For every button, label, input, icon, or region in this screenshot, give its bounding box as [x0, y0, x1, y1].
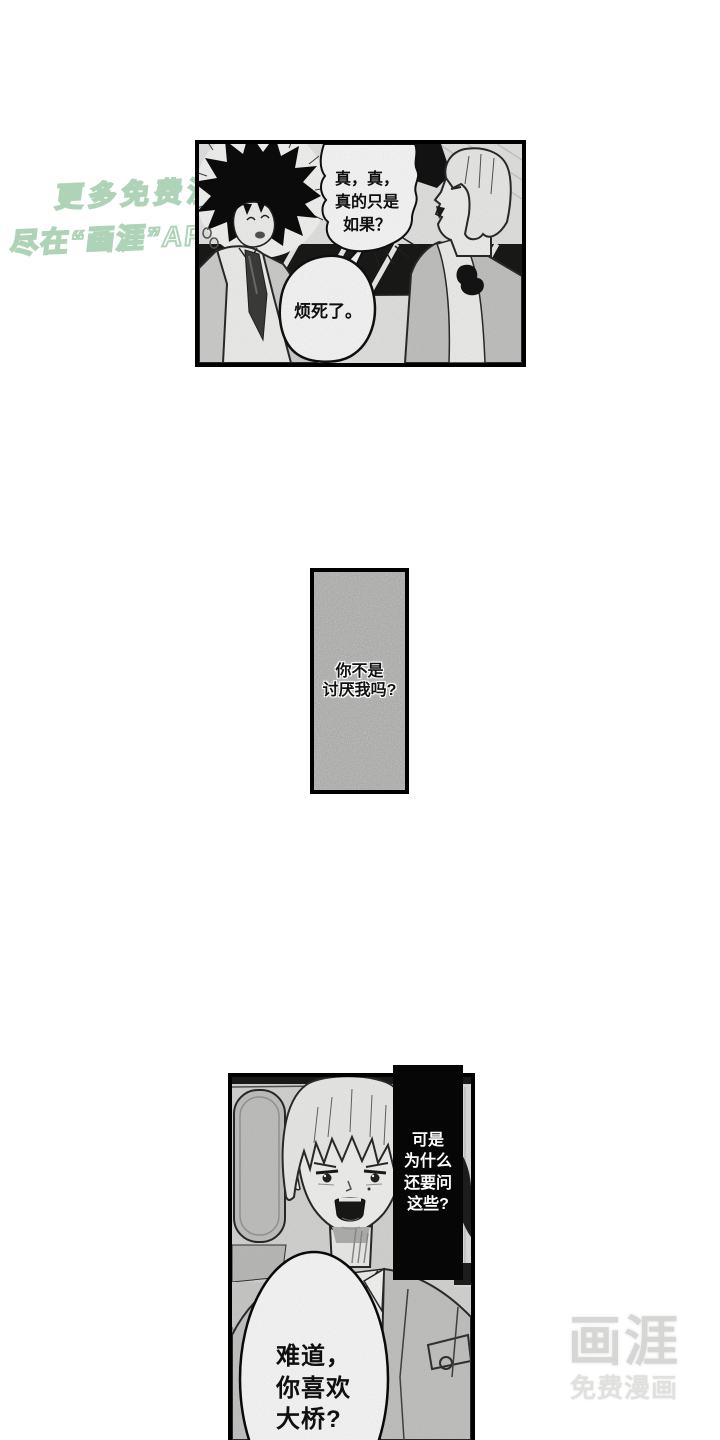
caption-line-1: 你不是 — [335, 662, 383, 681]
narration-box: 可是 为什么 还要问 这些? — [393, 1065, 463, 1280]
manga-page: 更多免费漫画 尽在“画涯”APP — [0, 0, 720, 1440]
panel-2-caption: 你不是 讨厌我吗? — [314, 572, 405, 790]
screentone-grain — [199, 144, 522, 363]
caption-line-2: 讨厌我吗? — [323, 681, 397, 700]
site-logo: 画涯 免费漫画 — [560, 1311, 688, 1403]
narration-line-4: 这些? — [407, 1194, 449, 1216]
comic-panel-2: 你不是 讨厌我吗? — [310, 568, 409, 794]
narration-line-2: 为什么 — [404, 1151, 452, 1173]
logo-title: 画涯 — [560, 1311, 688, 1373]
comic-panel-1: 烦死了。 真，真， 真的只是 如果？ — [195, 140, 526, 367]
panel-1-art: 烦死了。 真，真， 真的只是 如果？ — [199, 144, 522, 363]
narration-line-3: 还要问 — [404, 1173, 452, 1195]
narration-line-1: 可是 — [412, 1130, 444, 1152]
logo-subtitle: 免费漫画 — [560, 1373, 688, 1403]
